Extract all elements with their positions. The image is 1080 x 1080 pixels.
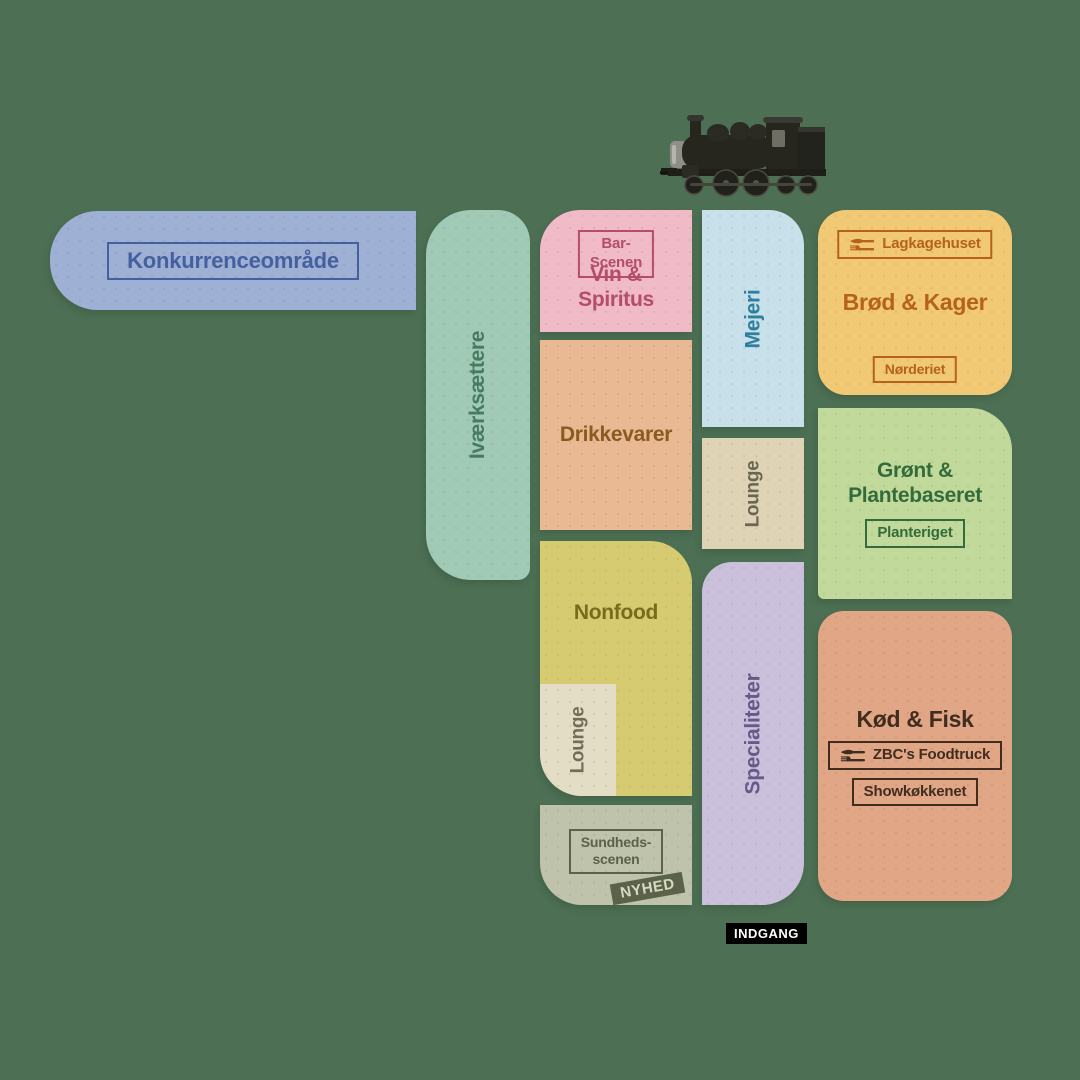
zone-konkurrenceomraade: Konkurrenceområde: [50, 211, 416, 310]
entrance-label: INDGANG: [726, 923, 807, 944]
zone-label: Konkurrenceområde: [107, 242, 359, 280]
zone-label: Specialiteter: [741, 673, 765, 794]
zone-vin-spiritus: Bar-Scenen Vin & Spiritus: [540, 210, 692, 332]
showkoekkenet-badge: Showkøkkenet: [852, 778, 979, 807]
zone-label: Grønt & Plantebaseret: [848, 459, 982, 509]
zone-label: Brød & Kager: [843, 289, 988, 316]
zone-groent-plantebaseret: Grønt & Plantebaseret Planteriget: [818, 408, 1012, 599]
zone-label: Lounge: [742, 460, 764, 527]
zone-lounge-mejeri: Lounge: [702, 438, 804, 549]
badge-label: ZBC's Foodtruck: [873, 746, 990, 765]
zbc-foodtruck-badge: ZBC's Foodtruck: [828, 741, 1002, 770]
zone-label: Mejeri: [741, 289, 765, 348]
fork-knife-icon: [840, 748, 866, 763]
zone-drikkevarer: Drikkevarer: [540, 340, 692, 530]
badge-label: Lagkagehuset: [882, 235, 980, 254]
sundhedsscenen-badge: Sundheds- scenen: [569, 829, 664, 874]
zone-label: Vin & Spiritus: [540, 263, 692, 313]
fork-knife-icon: [849, 237, 875, 252]
zone-specialiteter: Specialiteter: [702, 562, 804, 905]
lagkagehuset-badge: Lagkagehuset: [837, 230, 992, 259]
zone-sundhedsscenen: Sundheds- scenen NYHED: [540, 805, 692, 905]
zone-lounge-nonfood: Lounge: [540, 684, 616, 796]
zone-koed-fisk: Kød & Fisk ZBC's Foodtruck Showkøkkenet: [818, 611, 1012, 901]
zone-broed-kager: Lagkagehuset Brød & Kager Nørderiet: [818, 210, 1012, 395]
zone-label: Lounge: [567, 707, 589, 774]
festival-floor-plan: Konkurrenceområde Iværksættere Bar-Scene…: [0, 0, 1080, 1080]
zone-label: Nonfood: [540, 601, 692, 626]
zone-label: Drikkevarer: [560, 423, 672, 448]
zone-ivaerksaettere: Iværksættere: [426, 210, 530, 580]
noerderiet-badge: Nørderiet: [873, 356, 957, 384]
planteriget-badge: Planteriget: [865, 519, 964, 548]
zone-label: Kød & Fisk: [856, 706, 973, 733]
nyhed-tag: NYHED: [610, 872, 686, 905]
steam-locomotive-image: [660, 105, 830, 200]
zone-label: Iværksættere: [466, 331, 490, 459]
zone-mejeri: Mejeri: [702, 210, 804, 427]
